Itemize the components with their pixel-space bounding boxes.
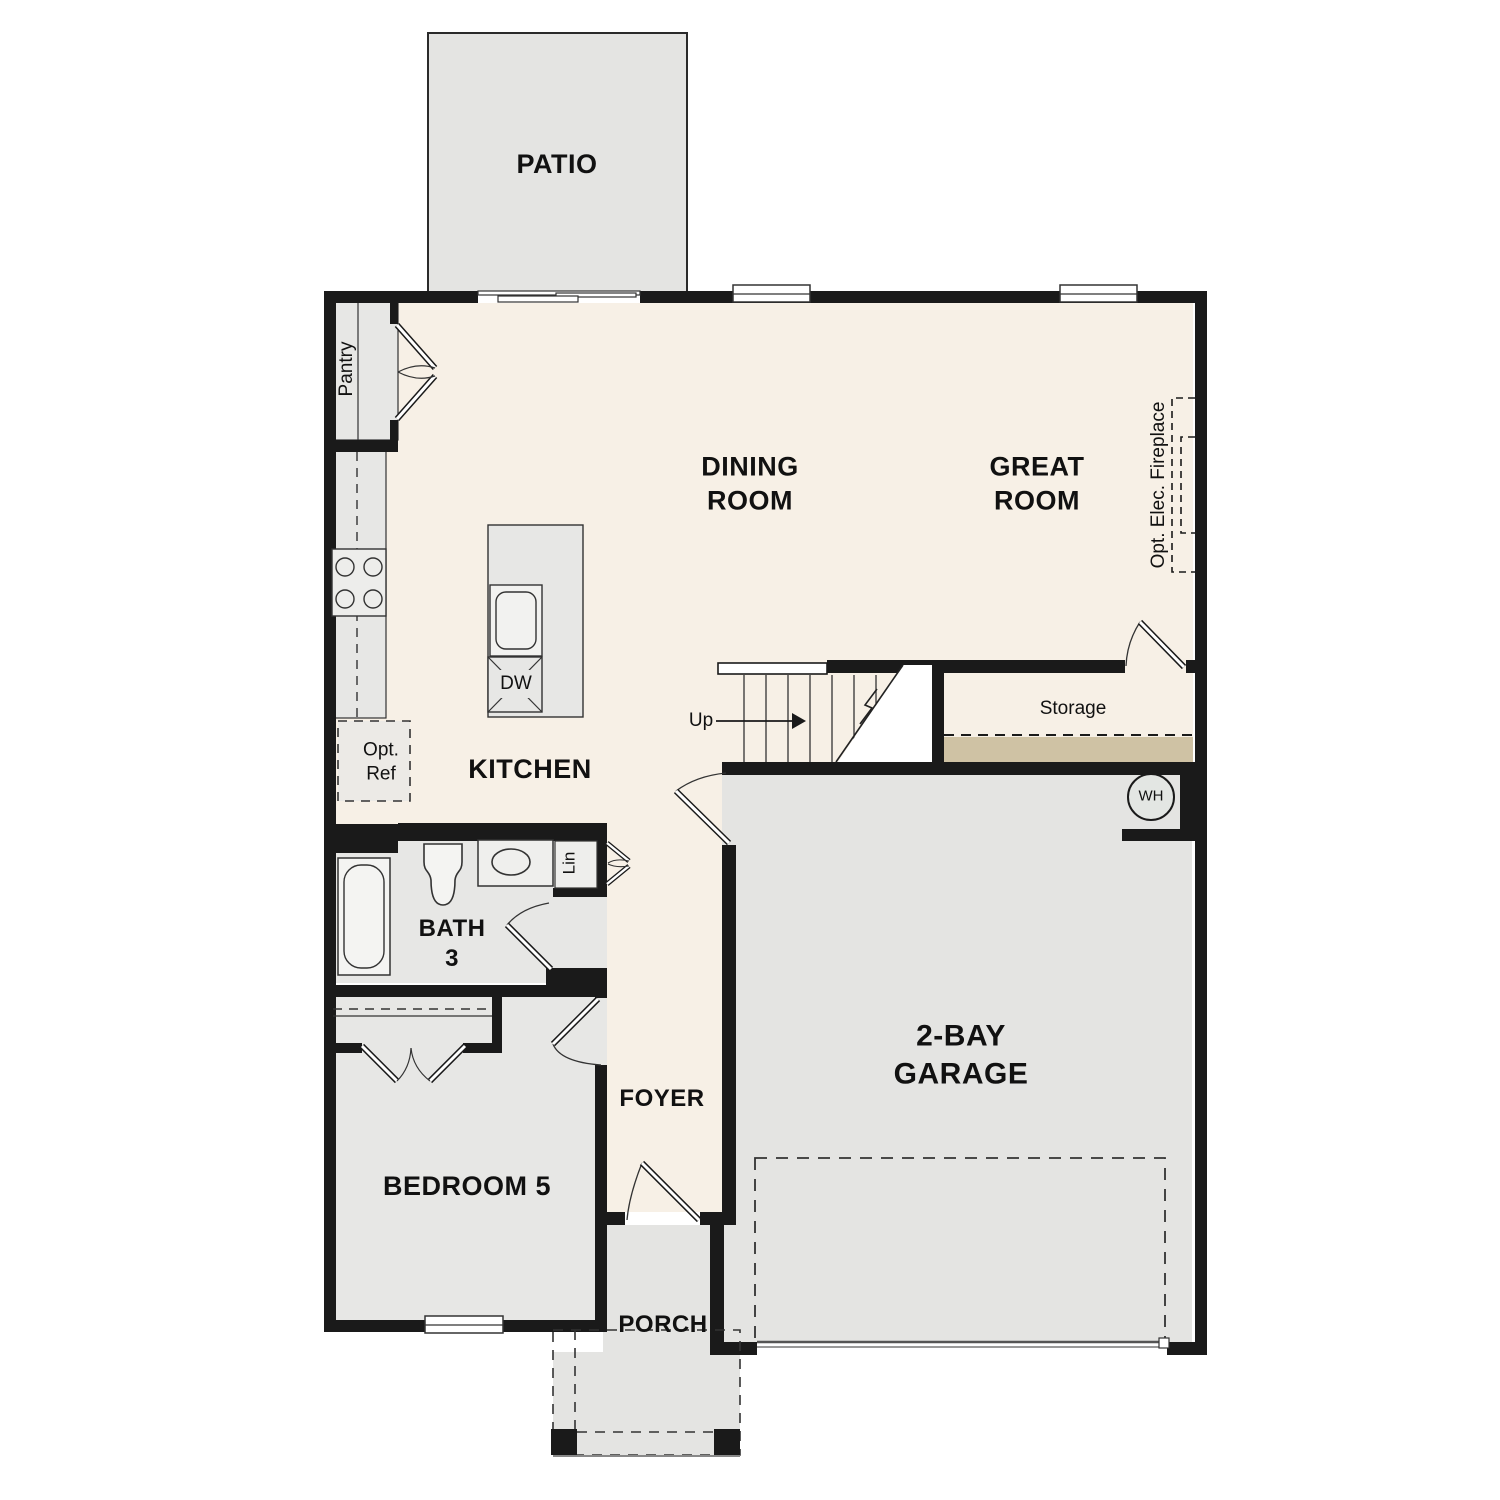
pantry-label: Pantry (335, 342, 359, 397)
linen-label: Lin (558, 852, 579, 875)
window-icon (1060, 285, 1137, 302)
dishwasher-label: DW (500, 672, 532, 696)
storage-label: Storage (1040, 697, 1107, 721)
bath-sink-icon (478, 840, 553, 886)
sink-icon (490, 585, 542, 656)
opt-ref-label: Opt. Ref (363, 738, 399, 786)
window-icon (425, 1316, 503, 1333)
porch-label: PORCH (618, 1310, 707, 1340)
dining-room-label: DINING ROOM (701, 450, 799, 518)
floor-plan-drawing (0, 0, 1500, 1500)
foyer-label: FOYER (619, 1084, 704, 1114)
cooktop-icon (332, 549, 386, 616)
window-icon (733, 285, 810, 302)
stairs-up-label: Up (689, 709, 713, 733)
opt-fireplace-label: Opt. Elec. Fireplace (1147, 402, 1171, 569)
water-heater-label: WH (1139, 788, 1164, 807)
bathtub-icon (338, 858, 390, 975)
bath3-label: BATH 3 (419, 914, 486, 974)
kitchen-label: KITCHEN (468, 753, 592, 787)
garage-label: 2-BAY GARAGE (894, 1018, 1029, 1095)
patio-label: PATIO (517, 148, 598, 182)
floor-plan: PATIO Pantry DINING ROOM GREAT ROOM Opt.… (0, 0, 1500, 1500)
great-room-label: GREAT ROOM (990, 450, 1085, 518)
bedroom5-label: BEDROOM 5 (383, 1170, 551, 1204)
